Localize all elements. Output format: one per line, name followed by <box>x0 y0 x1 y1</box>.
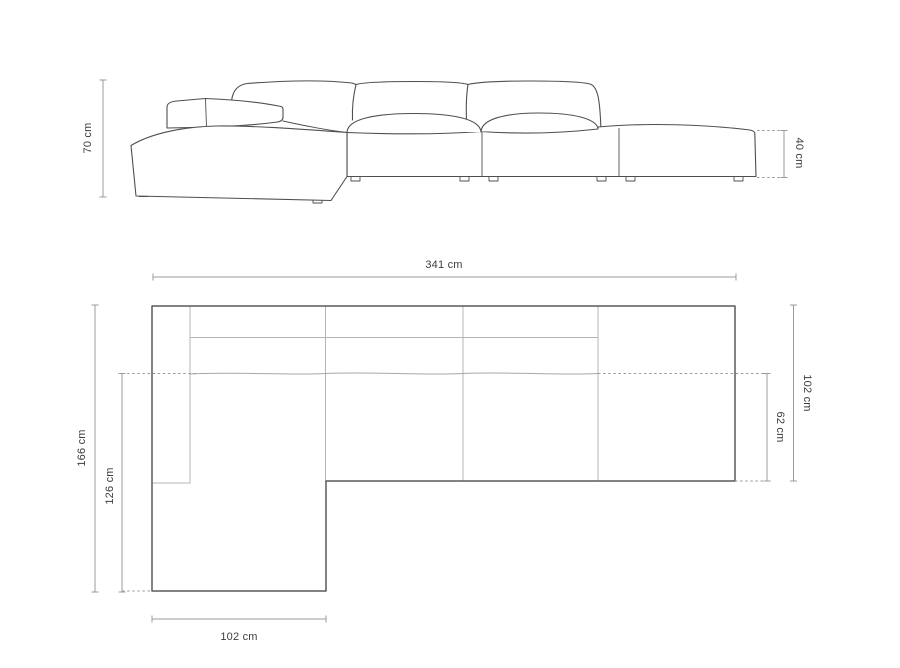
sofa-height-label: 70 cm <box>82 123 94 154</box>
sofa-dimension-diagram: 70 cm 40 cm 341 cm 166 cm 126 cm 102 cm … <box>0 0 900 668</box>
plan-extension-lines <box>122 374 767 592</box>
total-width-label: 341 cm <box>425 259 462 271</box>
seat-depth-label: 62 cm <box>774 412 786 443</box>
chaise-depth-label: 126 cm <box>104 467 116 504</box>
total-depth-dim-line <box>92 305 99 592</box>
plan-dimensions <box>92 274 798 623</box>
chaise-front <box>131 126 347 201</box>
ottoman-height-label: 40 cm <box>793 138 805 169</box>
top-plan-drawing <box>152 306 735 591</box>
chaise-depth-dim-line <box>119 374 126 593</box>
chaise-width-label: 102 cm <box>220 631 257 643</box>
ottoman-height-dim-line <box>781 131 788 178</box>
total-width-dim-line <box>153 274 736 281</box>
front-elevation-drawing <box>131 81 756 203</box>
body-depth-dim-line <box>790 305 797 481</box>
plan-outline <box>152 306 735 591</box>
plan-inner-lines <box>152 306 598 483</box>
ottoman-height-extension-lines <box>757 131 787 178</box>
plan-cushion-line <box>190 373 598 374</box>
total-depth-label: 166 cm <box>76 429 88 466</box>
height-dim-line <box>100 80 107 197</box>
seat-depth-dim-line <box>764 374 771 482</box>
body-depth-label: 102 cm <box>801 374 813 411</box>
chaise-width-dim-line <box>152 616 326 623</box>
sofa-dimension-drawing <box>0 0 900 668</box>
